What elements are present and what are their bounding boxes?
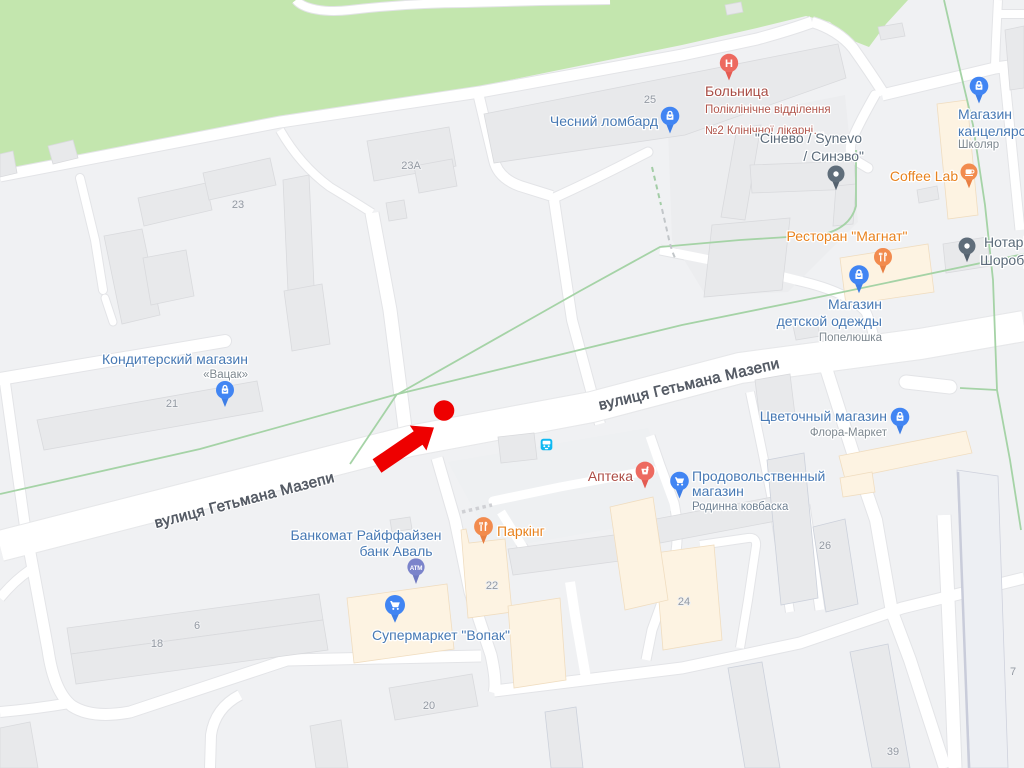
- svg-text:Магазин: Магазин: [958, 106, 1012, 122]
- svg-text:Попелюшка: Попелюшка: [819, 332, 883, 344]
- svg-text:Супермаркет "Вопак": Супермаркет "Вопак": [372, 627, 510, 643]
- svg-text:21: 21: [166, 398, 178, 410]
- svg-text:Чесний ломбард: Чесний ломбард: [550, 113, 658, 129]
- svg-text:детской одежды: детской одежды: [777, 313, 882, 329]
- svg-text:Ресторан "Магнат": Ресторан "Магнат": [786, 228, 907, 244]
- svg-text:26: 26: [819, 540, 831, 552]
- svg-text:23: 23: [232, 199, 244, 211]
- svg-text:Шоробура: Шоробура: [980, 252, 1024, 268]
- svg-text:Цветочный магазин: Цветочный магазин: [760, 408, 887, 424]
- svg-text:Кондитерский магазин: Кондитерский магазин: [102, 351, 248, 367]
- svg-text:магазин: магазин: [692, 483, 744, 499]
- svg-text:20: 20: [423, 700, 435, 712]
- svg-text:Паркінг: Паркінг: [497, 523, 545, 539]
- svg-text:18: 18: [151, 638, 163, 650]
- svg-text:39: 39: [887, 746, 899, 758]
- svg-text:Продовольственный: Продовольственный: [692, 468, 825, 484]
- svg-text:6: 6: [194, 620, 200, 632]
- svg-text:Поліклінічне відділення: Поліклінічне відділення: [705, 104, 831, 116]
- svg-text:«Вацак»: «Вацак»: [203, 369, 248, 381]
- svg-text:23А: 23А: [401, 160, 421, 172]
- svg-text:Родинна ковбаска: Родинна ковбаска: [692, 501, 789, 513]
- svg-text:/ Синэво": / Синэво": [803, 148, 864, 164]
- svg-text:канцелярськ: канцелярськ: [958, 123, 1024, 139]
- svg-text:Н: Н: [725, 58, 733, 70]
- svg-text:Нотаріус: Нотаріус: [984, 234, 1024, 250]
- svg-text:22: 22: [486, 580, 498, 592]
- svg-text:Аптека: Аптека: [588, 468, 633, 484]
- svg-text:Банкомат Райффайзен: Банкомат Райффайзен: [290, 527, 441, 543]
- svg-text:Больница: Больница: [705, 83, 769, 99]
- svg-text:"Сінево / Synevo: "Сінево / Synevo: [755, 130, 862, 146]
- svg-text:Coffee Lab: Coffee Lab: [890, 168, 958, 184]
- svg-text:7: 7: [1010, 666, 1016, 678]
- svg-text:Флора-Маркет: Флора-Маркет: [810, 427, 888, 439]
- svg-text:Магазин: Магазин: [828, 296, 882, 312]
- svg-text:25: 25: [644, 94, 656, 106]
- svg-text:ATM: ATM: [410, 565, 423, 572]
- svg-text:Школяр: Школяр: [958, 139, 999, 151]
- svg-text:24: 24: [678, 596, 690, 608]
- svg-text:банк Аваль: банк Аваль: [359, 543, 432, 559]
